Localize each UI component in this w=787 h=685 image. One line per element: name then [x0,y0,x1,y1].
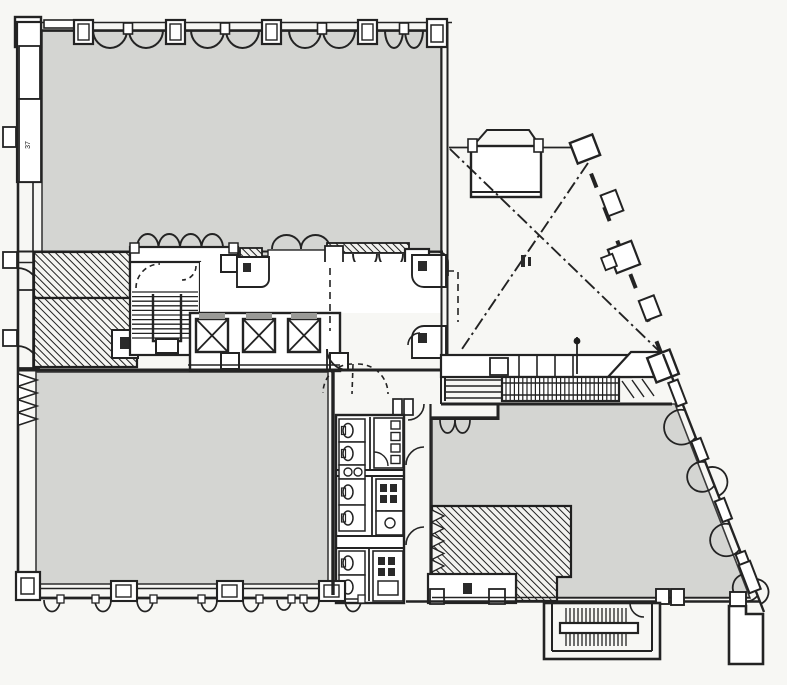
svg-text:37: 37 [25,141,32,149]
